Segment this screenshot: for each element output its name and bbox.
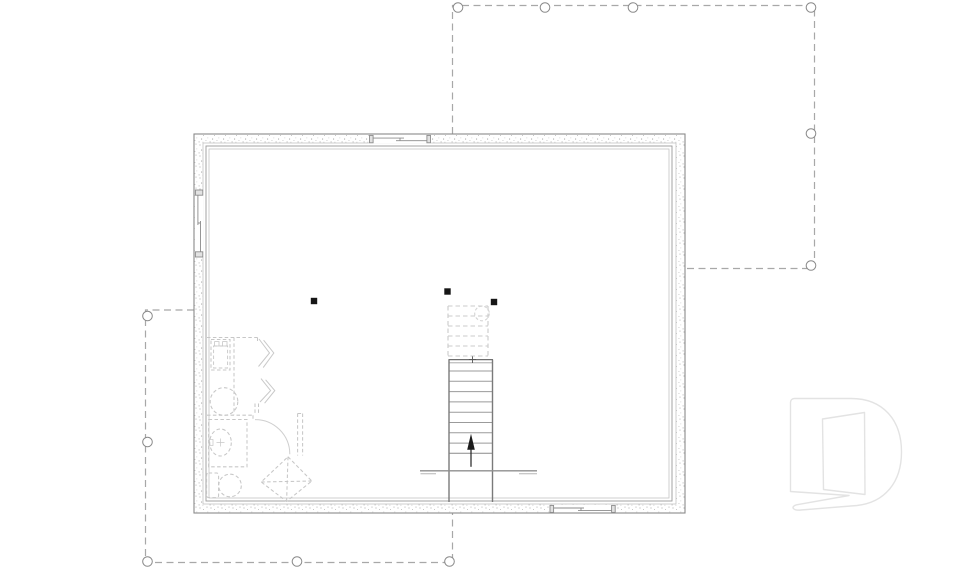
foundation-outer-line — [194, 134, 685, 513]
vanity-counter — [209, 420, 247, 467]
structural-posts — [311, 288, 497, 305]
interior-wall-face-light — [209, 149, 669, 498]
toilet-bowl — [219, 474, 242, 497]
stair-post-circle — [475, 306, 490, 321]
deck-pier — [143, 557, 153, 567]
stair-lower-run — [420, 356, 537, 502]
window-jamb — [195, 190, 202, 195]
brand-logo-d — [791, 399, 902, 511]
washer-knob — [223, 342, 227, 346]
washer-knob — [215, 342, 219, 346]
deck-pier — [540, 3, 550, 13]
wall-stipple-band — [194, 134, 685, 513]
deck-pier — [806, 129, 816, 139]
deck-pier — [143, 311, 153, 321]
wall-break-symbols — [259, 339, 275, 403]
floor-plan-drawing — [0, 0, 960, 569]
deck-pier — [806, 3, 816, 13]
column-post — [444, 288, 450, 294]
stair-treads — [449, 371, 493, 443]
deck-edge — [146, 310, 453, 563]
foundation-wall — [194, 134, 685, 513]
arrow-head — [467, 434, 475, 450]
deck-pier — [445, 557, 455, 567]
sink-faucet-mark — [217, 439, 225, 447]
column-post — [311, 298, 317, 304]
wall-opening-left — [195, 190, 204, 258]
future-wall-below-break — [255, 404, 259, 416]
deck-piers — [143, 3, 816, 567]
logo-door-counter — [823, 413, 866, 495]
window-jamb — [612, 505, 616, 512]
window-jamb — [370, 135, 374, 142]
deck-pier — [453, 3, 463, 13]
stair-dashed-stringers — [448, 306, 488, 357]
stair-upper-run-dashed — [448, 306, 489, 357]
floor-plan-sheet — [0, 0, 960, 569]
deck-pier — [292, 557, 302, 567]
window-jamb — [427, 135, 431, 142]
column-post — [491, 299, 497, 305]
deck-pier — [806, 261, 816, 271]
wall-band-inner-edge — [203, 143, 676, 504]
stair-break-mark — [469, 356, 476, 363]
deck-pier — [628, 3, 638, 13]
deck-pier — [143, 437, 153, 447]
wall-opening-bottom — [550, 505, 615, 513]
future-wall-mid — [207, 415, 253, 421]
toilet-tank — [207, 473, 219, 498]
future-wall-door-side — [298, 414, 303, 456]
stair-up-arrow — [467, 434, 475, 467]
window-jamb — [550, 505, 554, 512]
wall-break-chevron — [259, 339, 270, 367]
window-jamb — [195, 252, 202, 257]
deck-outline-lower-left — [146, 310, 453, 563]
washer-inner — [214, 346, 228, 368]
interior-wall-face — [206, 146, 672, 501]
door-swing-arc — [255, 420, 290, 455]
corner-shower-diagonals — [261, 457, 312, 502]
stair-dashed-treads — [448, 306, 488, 356]
